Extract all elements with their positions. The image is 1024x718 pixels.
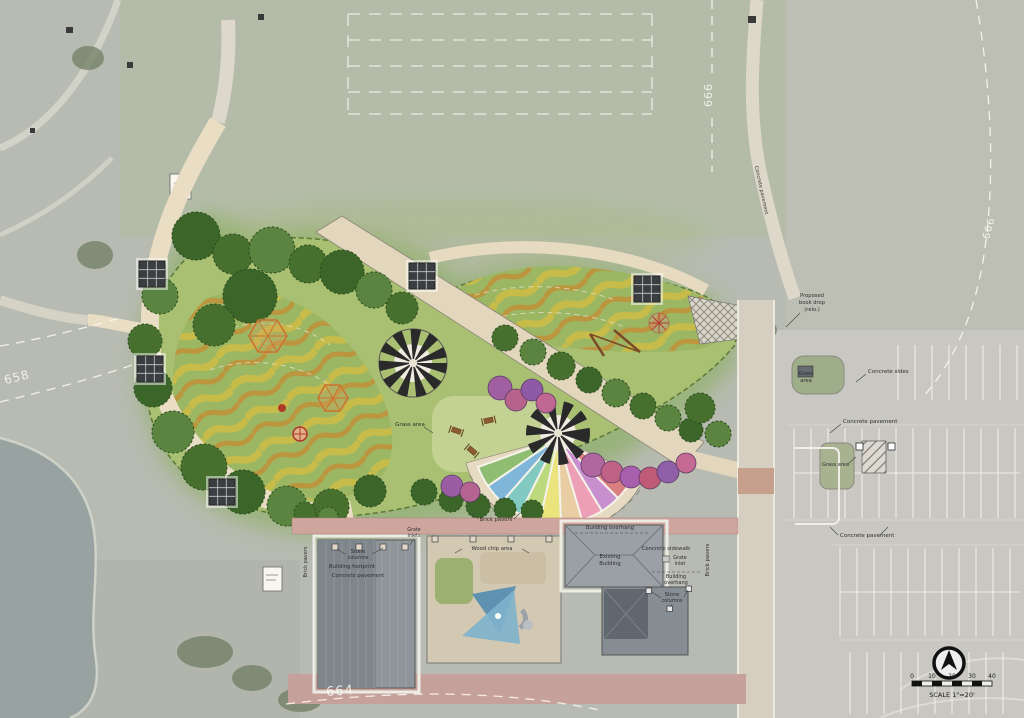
- svg-text:columns: columns: [347, 555, 368, 561]
- svg-text:area: area: [800, 378, 812, 384]
- svg-text:Grass area: Grass area: [395, 422, 425, 428]
- svg-text:Concrete pavement: Concrete pavement: [843, 419, 898, 425]
- shade-structure: [631, 273, 663, 305]
- climbing-web-small: [318, 383, 348, 413]
- svg-text:Concrete sides: Concrete sides: [868, 369, 909, 375]
- note-box-southwest: [263, 567, 282, 591]
- shade-structure: [134, 353, 166, 385]
- label-existing-building: Existing Building: [599, 554, 621, 567]
- svg-text:(relo.): (relo.): [804, 307, 819, 313]
- courtyard: [427, 536, 561, 663]
- courtyard-lawn: [435, 558, 473, 604]
- svg-text:Grass area: Grass area: [822, 462, 849, 468]
- shade-structure: [136, 258, 168, 290]
- net-climber: [649, 313, 669, 333]
- svg-text:Building: Building: [599, 561, 621, 567]
- shade-structure: [406, 260, 438, 292]
- svg-text:overhang: overhang: [664, 580, 688, 586]
- site-plan-svg: 666 666 658 664 Concrete pavement Propos…: [0, 0, 1024, 718]
- accessible-sign: [888, 443, 895, 450]
- label-grass-area-island: Grass area: [799, 371, 814, 384]
- site-plan-canvas: 666 666 658 664 Concrete pavement Propos…: [0, 0, 1024, 718]
- grate-inlet-icon: [663, 556, 669, 562]
- svg-text:Existing: Existing: [600, 554, 621, 560]
- drive-lane: [738, 300, 774, 718]
- label-building-footprint: Building footprint: [329, 564, 375, 570]
- svg-text:Grass: Grass: [799, 371, 814, 377]
- svg-text:Grate: Grate: [673, 555, 687, 561]
- contour-label-top: 666: [702, 83, 715, 107]
- svg-text:inlet: inlet: [675, 561, 686, 567]
- play-pod: [278, 404, 286, 412]
- scale-tick: 10: [928, 673, 936, 680]
- svg-text:Proposed: Proposed: [800, 293, 824, 299]
- svg-text:columns: columns: [661, 598, 682, 604]
- svg-text:Wood chip area: Wood chip area: [471, 546, 512, 552]
- brick-plaza-north: [292, 518, 738, 534]
- piano-plaza-east: [540, 415, 576, 451]
- accessible-sign: [856, 443, 863, 450]
- svg-text:inlets: inlets: [407, 533, 421, 539]
- contour-label-bottom: 664: [326, 683, 355, 700]
- scale-tick: 0: [910, 673, 914, 680]
- shade-structure: [206, 476, 238, 508]
- label-concrete-pavement-building: Concrete pavement: [332, 573, 384, 579]
- brick-crosswalk: [738, 468, 774, 494]
- svg-text:book drop: book drop: [799, 300, 826, 306]
- scale-tick: 40: [988, 673, 996, 680]
- label-brick-pavers-east-vertical: Brick pavers: [705, 543, 711, 576]
- scale-tick: 30: [968, 673, 976, 680]
- sand-area: [480, 552, 546, 584]
- play-sculpture: [523, 620, 533, 630]
- scale-tick: 20: [948, 673, 956, 680]
- svg-text:Brick pavers: Brick pavers: [480, 517, 513, 523]
- climbing-web-large: [249, 317, 287, 355]
- crosswalk-hatch: [862, 441, 886, 473]
- svg-text:Concrete pavement: Concrete pavement: [840, 533, 895, 539]
- label-brick-pavers-west-vertical: Brick pavers: [303, 546, 309, 577]
- svg-text:Grate: Grate: [407, 527, 421, 533]
- label-concrete-sidewalk: Concrete sidewalk: [642, 546, 691, 552]
- scale-text: SCALE 1"=20': [929, 691, 975, 699]
- svg-text:Building overhang: Building overhang: [586, 525, 634, 531]
